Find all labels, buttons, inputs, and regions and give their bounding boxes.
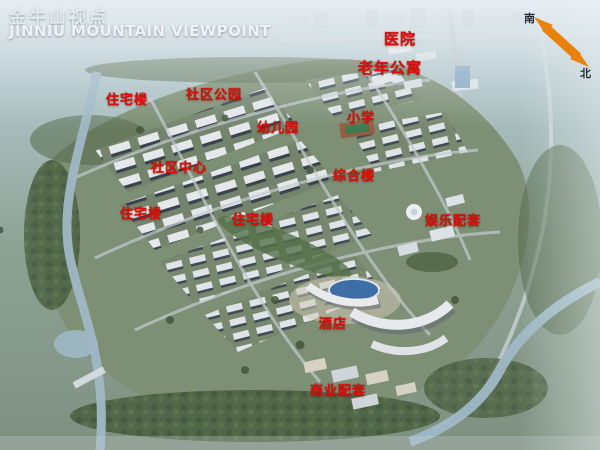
haze-top bbox=[0, 0, 600, 130]
haze-right bbox=[520, 0, 600, 450]
aerial-view-image bbox=[0, 0, 600, 450]
river-widening bbox=[54, 330, 98, 358]
haze-bottom bbox=[0, 436, 600, 450]
trees-bottom bbox=[70, 390, 440, 442]
aerial-masterplan-rendering: 金牛山视点 JINNIU MOUNTAIN VIEWPOINT 南 北 医院 老… bbox=[0, 0, 600, 450]
